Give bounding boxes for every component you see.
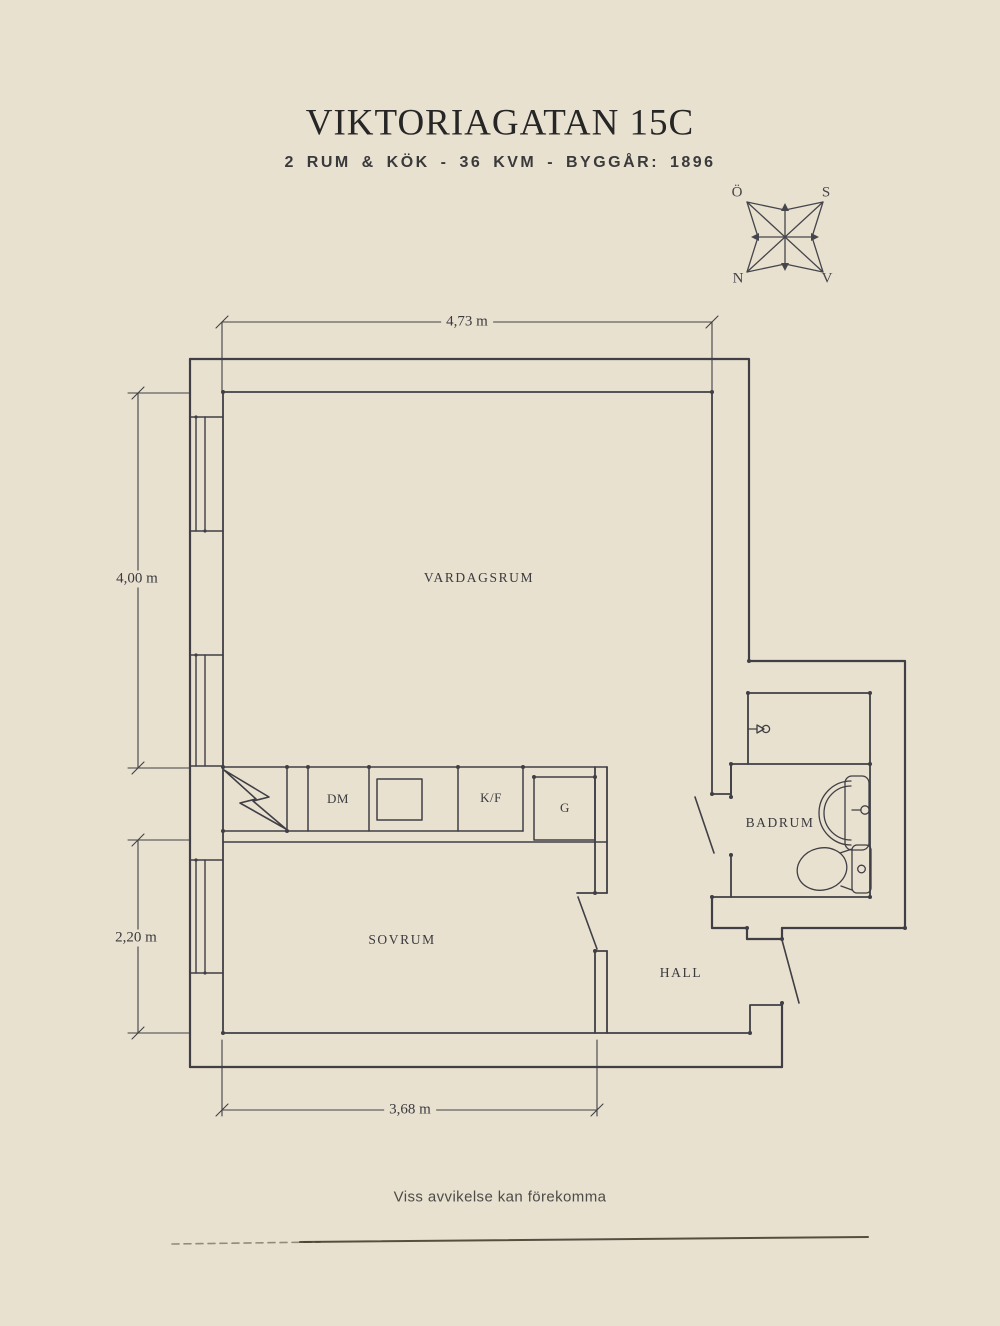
windows [190,417,223,973]
entrance-door-leaf [782,940,799,1003]
unit-label-dishwasher: DM [327,791,349,807]
bathroom-fixtures [748,725,871,895]
compass-label-south: S [822,185,830,202]
compass-label-north: N [733,271,744,288]
bedroom-door-leaf [578,897,597,949]
bathroom-door-leaf [695,797,714,853]
room-label-bedroom: SOVRUM [368,932,435,948]
kitchen-counter [223,767,607,842]
pencil-smudge [172,1237,868,1244]
floor-plan-page: VIKTORIAGATAN 15C 2 RUM & KÖK - 36 KVM -… [0,0,1000,1326]
room-label-bathroom: BADRUM [746,815,815,831]
dimension-label-bottom: 3,68 m [384,1102,436,1119]
window-living-upper [190,417,223,531]
outer-walls [190,359,905,1067]
compass-label-west: V [822,271,833,288]
dimension-label-left-lower: 2,20 m [110,930,162,947]
window-bedroom [190,860,223,973]
room-label-hall: HALL [660,965,702,981]
sink-icon [819,776,869,850]
unit-label-fridge-freezer: K/F [480,790,502,806]
floor-plan-drawing [0,0,1000,1326]
compass-rose-icon [747,202,823,272]
window-living-lower [190,655,223,766]
unit-label-wardrobe: G [560,800,570,816]
room-label-living: VARDAGSRUM [424,570,534,586]
disclaimer-text: Viss avvikelse kan förekomma [394,1189,607,1206]
inner-walls [223,392,782,1033]
compass-label-east: Ö [732,185,743,202]
dimension-label-top: 4,73 m [441,314,493,331]
dimension-label-left-upper: 4,00 m [111,571,163,588]
sink-unit [377,779,422,820]
dimension-lines [128,316,718,1116]
shower-icon [748,725,770,733]
corner-dots [194,390,907,1035]
corner-cabinet-symbol [224,770,286,829]
